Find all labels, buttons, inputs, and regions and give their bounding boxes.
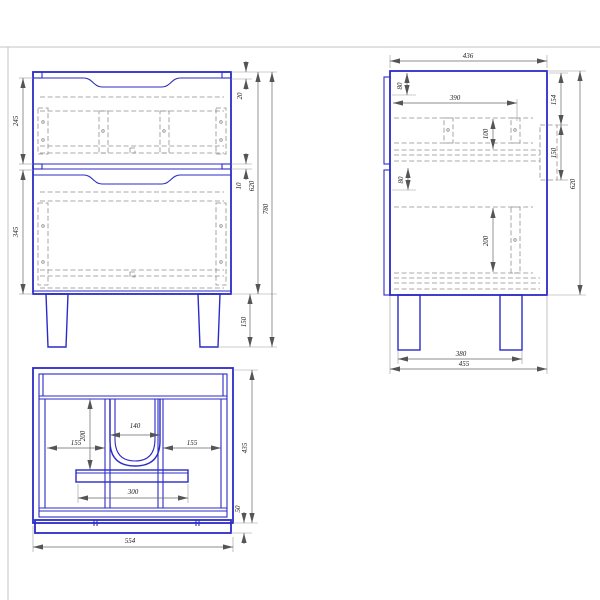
- side-hidden-lines: [394, 118, 557, 289]
- dim-plan-board-width: 300: [127, 488, 139, 496]
- dim-front-drawer-bottom: 345: [12, 226, 20, 238]
- sink-cutout-inner: [115, 399, 155, 461]
- dim-side-depth-top: 436: [463, 52, 474, 60]
- dim-side-body-height: 620: [569, 178, 577, 189]
- dim-plan-total-width: 554: [125, 537, 136, 545]
- drawing-sheet: 245 345 20 10 620 780 150: [0, 0, 600, 600]
- side-back-leg: [500, 295, 522, 350]
- dim-side-rail-height-bottom: 200: [482, 235, 490, 246]
- dim-plan-front-edge: 50: [234, 505, 242, 513]
- front-dimensions: 245 345 20 10 620 780 150: [12, 61, 277, 347]
- front-right-leg: [198, 294, 220, 347]
- dim-front-body-height: 620: [248, 180, 256, 191]
- dim-side-back-offset-top: 80: [396, 82, 404, 90]
- plan-cabinet-outline: [33, 368, 233, 523]
- plan-view: 155 155 140 200 300 554 435 50: [33, 368, 258, 552]
- dim-side-rail-height-top: 100: [482, 128, 490, 139]
- side-outline: [384, 71, 547, 350]
- plan-front-edge-strip: [35, 520, 231, 533]
- side-front-leg: [398, 295, 420, 350]
- side-cabinet-outline: [390, 71, 547, 295]
- front-hidden-lines: [38, 97, 226, 288]
- dim-side-top-margin: 154: [550, 94, 558, 105]
- dim-front-leg-height: 150: [240, 316, 248, 327]
- dim-side-back-offset-mid: 80: [397, 176, 405, 184]
- dim-side-depth-bottom: 455: [459, 360, 470, 368]
- front-cabinet-outline: [33, 72, 231, 294]
- dim-front-drawer-top: 245: [12, 115, 20, 126]
- dim-side-rail-length: 390: [449, 94, 461, 102]
- dim-front-gap: 10: [235, 182, 243, 190]
- dim-plan-center-depth: 200: [79, 430, 87, 441]
- support-board: [76, 470, 188, 482]
- dim-front-total-height: 780: [262, 203, 270, 214]
- sink-cutout-outer: [110, 399, 160, 466]
- technical-drawing: 245 345 20 10 620 780 150: [0, 0, 600, 600]
- handle-recess-top: [33, 78, 231, 87]
- plan-dimensions: 155 155 140 200 300 554 435 50: [33, 370, 258, 552]
- front-view: 245 345 20 10 620 780 150: [12, 61, 277, 347]
- dim-plan-right-bay: 155: [187, 439, 198, 447]
- side-view: 436 80 390 100 80 200 154 150 62: [384, 52, 586, 374]
- plan-outline: [33, 368, 233, 533]
- dim-side-bracket-height: 150: [550, 147, 558, 158]
- handle-recess-bottom: [33, 175, 231, 184]
- dim-front-top-recess: 20: [236, 92, 244, 100]
- front-outline: [33, 72, 231, 347]
- front-mid-left-block: [33, 164, 42, 169]
- front-left-leg: [46, 294, 68, 347]
- dim-plan-total-depth: 435: [241, 442, 249, 453]
- dim-side-leg-span: 380: [455, 350, 467, 358]
- dim-plan-cutout-width: 140: [130, 422, 141, 430]
- front-mid-right-block: [222, 164, 231, 169]
